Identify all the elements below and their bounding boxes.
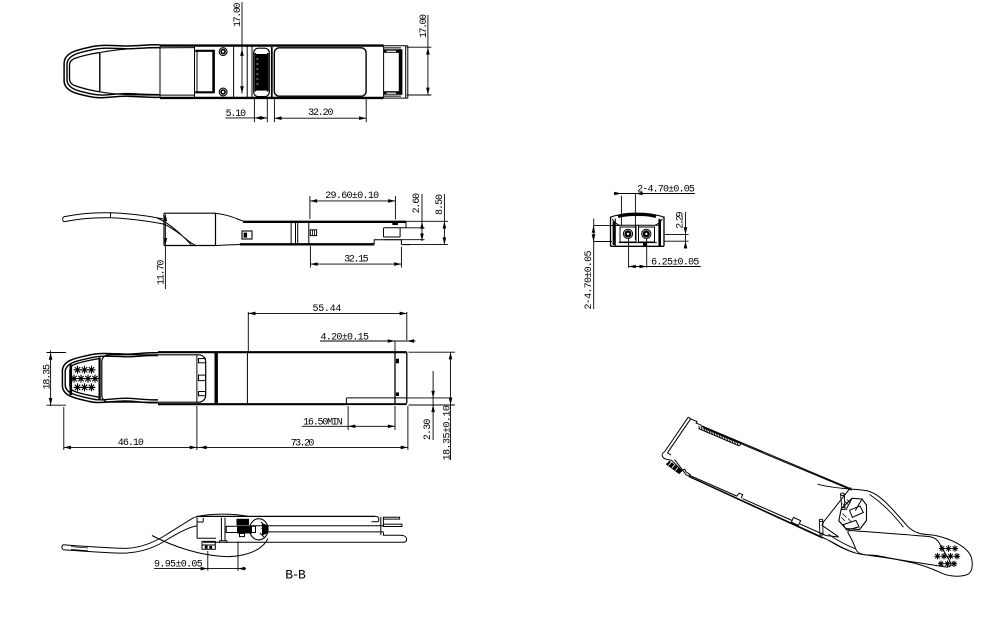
svg-text:B-B: B-B	[285, 568, 306, 583]
svg-text:55.44: 55.44	[313, 304, 342, 315]
svg-text:16.50MIN: 16.50MIN	[303, 418, 343, 429]
svg-text:2.30: 2.30	[423, 419, 434, 441]
svg-text:18.35±0.10: 18.35±0.10	[443, 405, 454, 460]
svg-text:8.50: 8.50	[435, 194, 446, 215]
svg-text:5.10: 5.10	[226, 109, 247, 120]
svg-text:6.25±0.05: 6.25±0.05	[651, 257, 699, 268]
svg-text:9.95±0.05: 9.95±0.05	[154, 559, 203, 570]
svg-text:29.60±0.10: 29.60±0.10	[325, 191, 379, 202]
svg-text:73.20: 73.20	[291, 438, 315, 449]
svg-text:46.10: 46.10	[118, 438, 144, 449]
svg-text:4.20±0.15: 4.20±0.15	[321, 332, 370, 343]
svg-text:2-4.70±0.05: 2-4.70±0.05	[637, 184, 695, 195]
svg-text:17.00: 17.00	[419, 14, 430, 38]
svg-text:2-4.70±0.05: 2-4.70±0.05	[584, 251, 595, 310]
svg-text:32.20: 32.20	[308, 108, 333, 119]
svg-text:2.29: 2.29	[675, 211, 686, 228]
svg-text:2.60: 2.60	[412, 193, 423, 214]
svg-text:18.35: 18.35	[43, 364, 54, 390]
svg-text:17.00: 17.00	[233, 3, 244, 28]
svg-text:32.15: 32.15	[344, 255, 368, 266]
svg-text:11.70: 11.70	[157, 260, 168, 285]
